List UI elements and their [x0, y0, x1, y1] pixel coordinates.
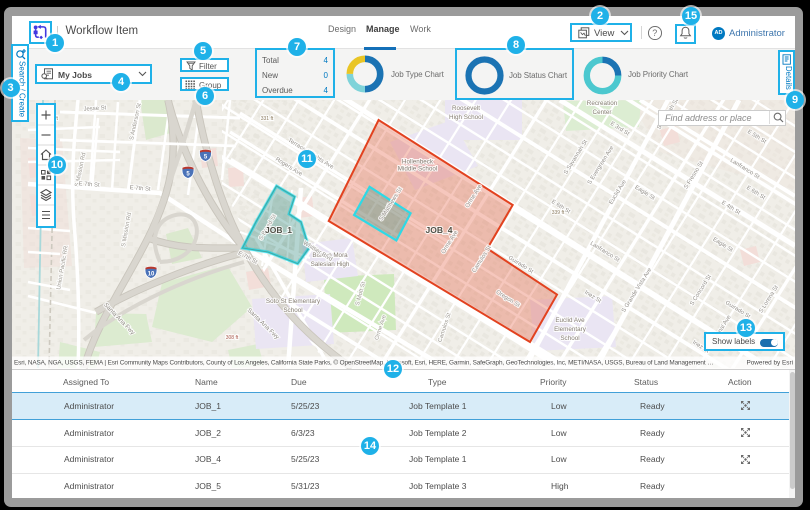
- svg-text:Roosevelt: Roosevelt: [452, 105, 480, 112]
- svg-text:Center: Center: [593, 109, 612, 116]
- svg-text:10: 10: [148, 272, 155, 278]
- svg-text:Esri, NASA, NGA, USGS, FEMA |: Esri, NASA, NGA, USGS, FEMA | Esri Commu…: [14, 359, 713, 367]
- svg-text:331 ft: 331 ft: [261, 116, 274, 122]
- svg-text:Recreation: Recreation: [587, 100, 618, 107]
- svg-text:Middle School: Middle School: [398, 166, 438, 173]
- svg-text:Powered by Esri: Powered by Esri: [746, 360, 793, 367]
- svg-text:308 ft: 308 ft: [226, 335, 239, 341]
- svg-text:Elementary: Elementary: [554, 326, 587, 333]
- svg-text:School: School: [560, 335, 579, 342]
- svg-text:JOB_1: JOB_1: [265, 225, 292, 235]
- svg-text:Soto St Elementary: Soto St Elementary: [266, 298, 321, 305]
- svg-text:Hollenbeck: Hollenbeck: [402, 159, 434, 166]
- svg-text:School: School: [283, 307, 302, 314]
- svg-text:339 ft: 339 ft: [552, 210, 565, 216]
- svg-text:Euclid Ave: Euclid Ave: [555, 317, 585, 324]
- svg-text:JOB_4: JOB_4: [426, 225, 453, 235]
- svg-text:High School: High School: [449, 114, 483, 121]
